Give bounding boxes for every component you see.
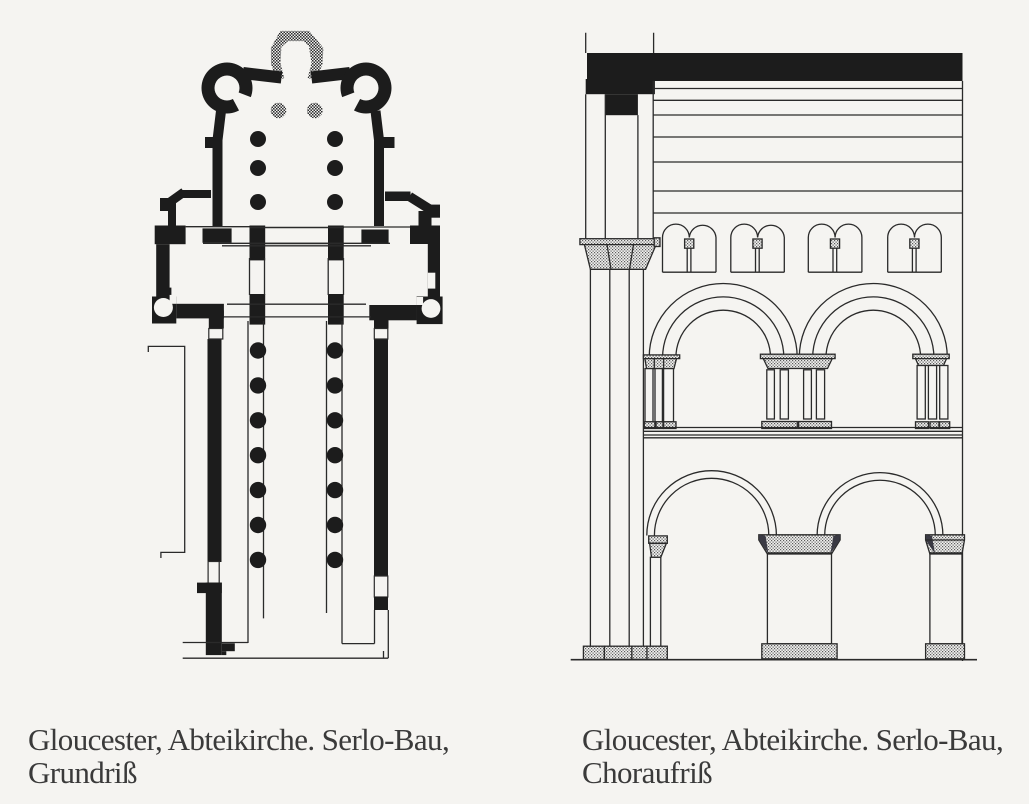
svg-text:Choraufriß: Choraufriß (582, 755, 712, 790)
svg-text:Gloucester, Abteikirche. Serlo: Gloucester, Abteikirche. Serlo-Bau, (582, 722, 1003, 757)
svg-text:Grundriß: Grundriß (28, 755, 137, 790)
svg-text:Gloucester, Abteikirche. Serlo: Gloucester, Abteikirche. Serlo-Bau, (28, 722, 449, 757)
